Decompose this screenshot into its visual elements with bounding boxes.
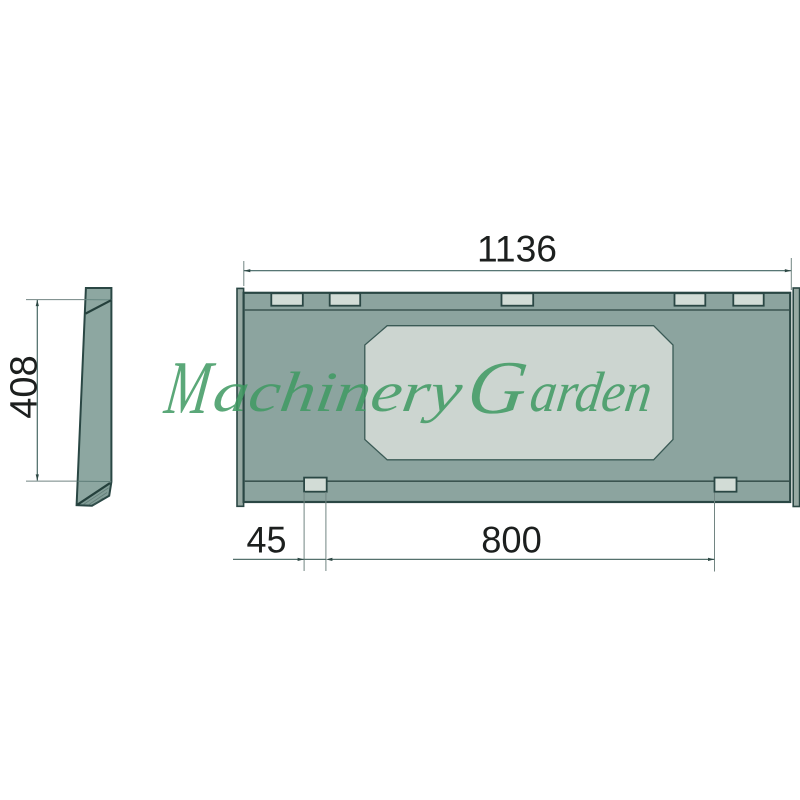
svg-text:408: 408: [4, 355, 46, 418]
svg-text:800: 800: [481, 520, 542, 561]
svg-text:1136: 1136: [477, 229, 557, 270]
svg-text:G: G: [463, 345, 533, 430]
svg-text:arden: arden: [526, 361, 656, 424]
svg-text:45: 45: [247, 520, 287, 561]
svg-text:achinery: achinery: [209, 361, 467, 424]
